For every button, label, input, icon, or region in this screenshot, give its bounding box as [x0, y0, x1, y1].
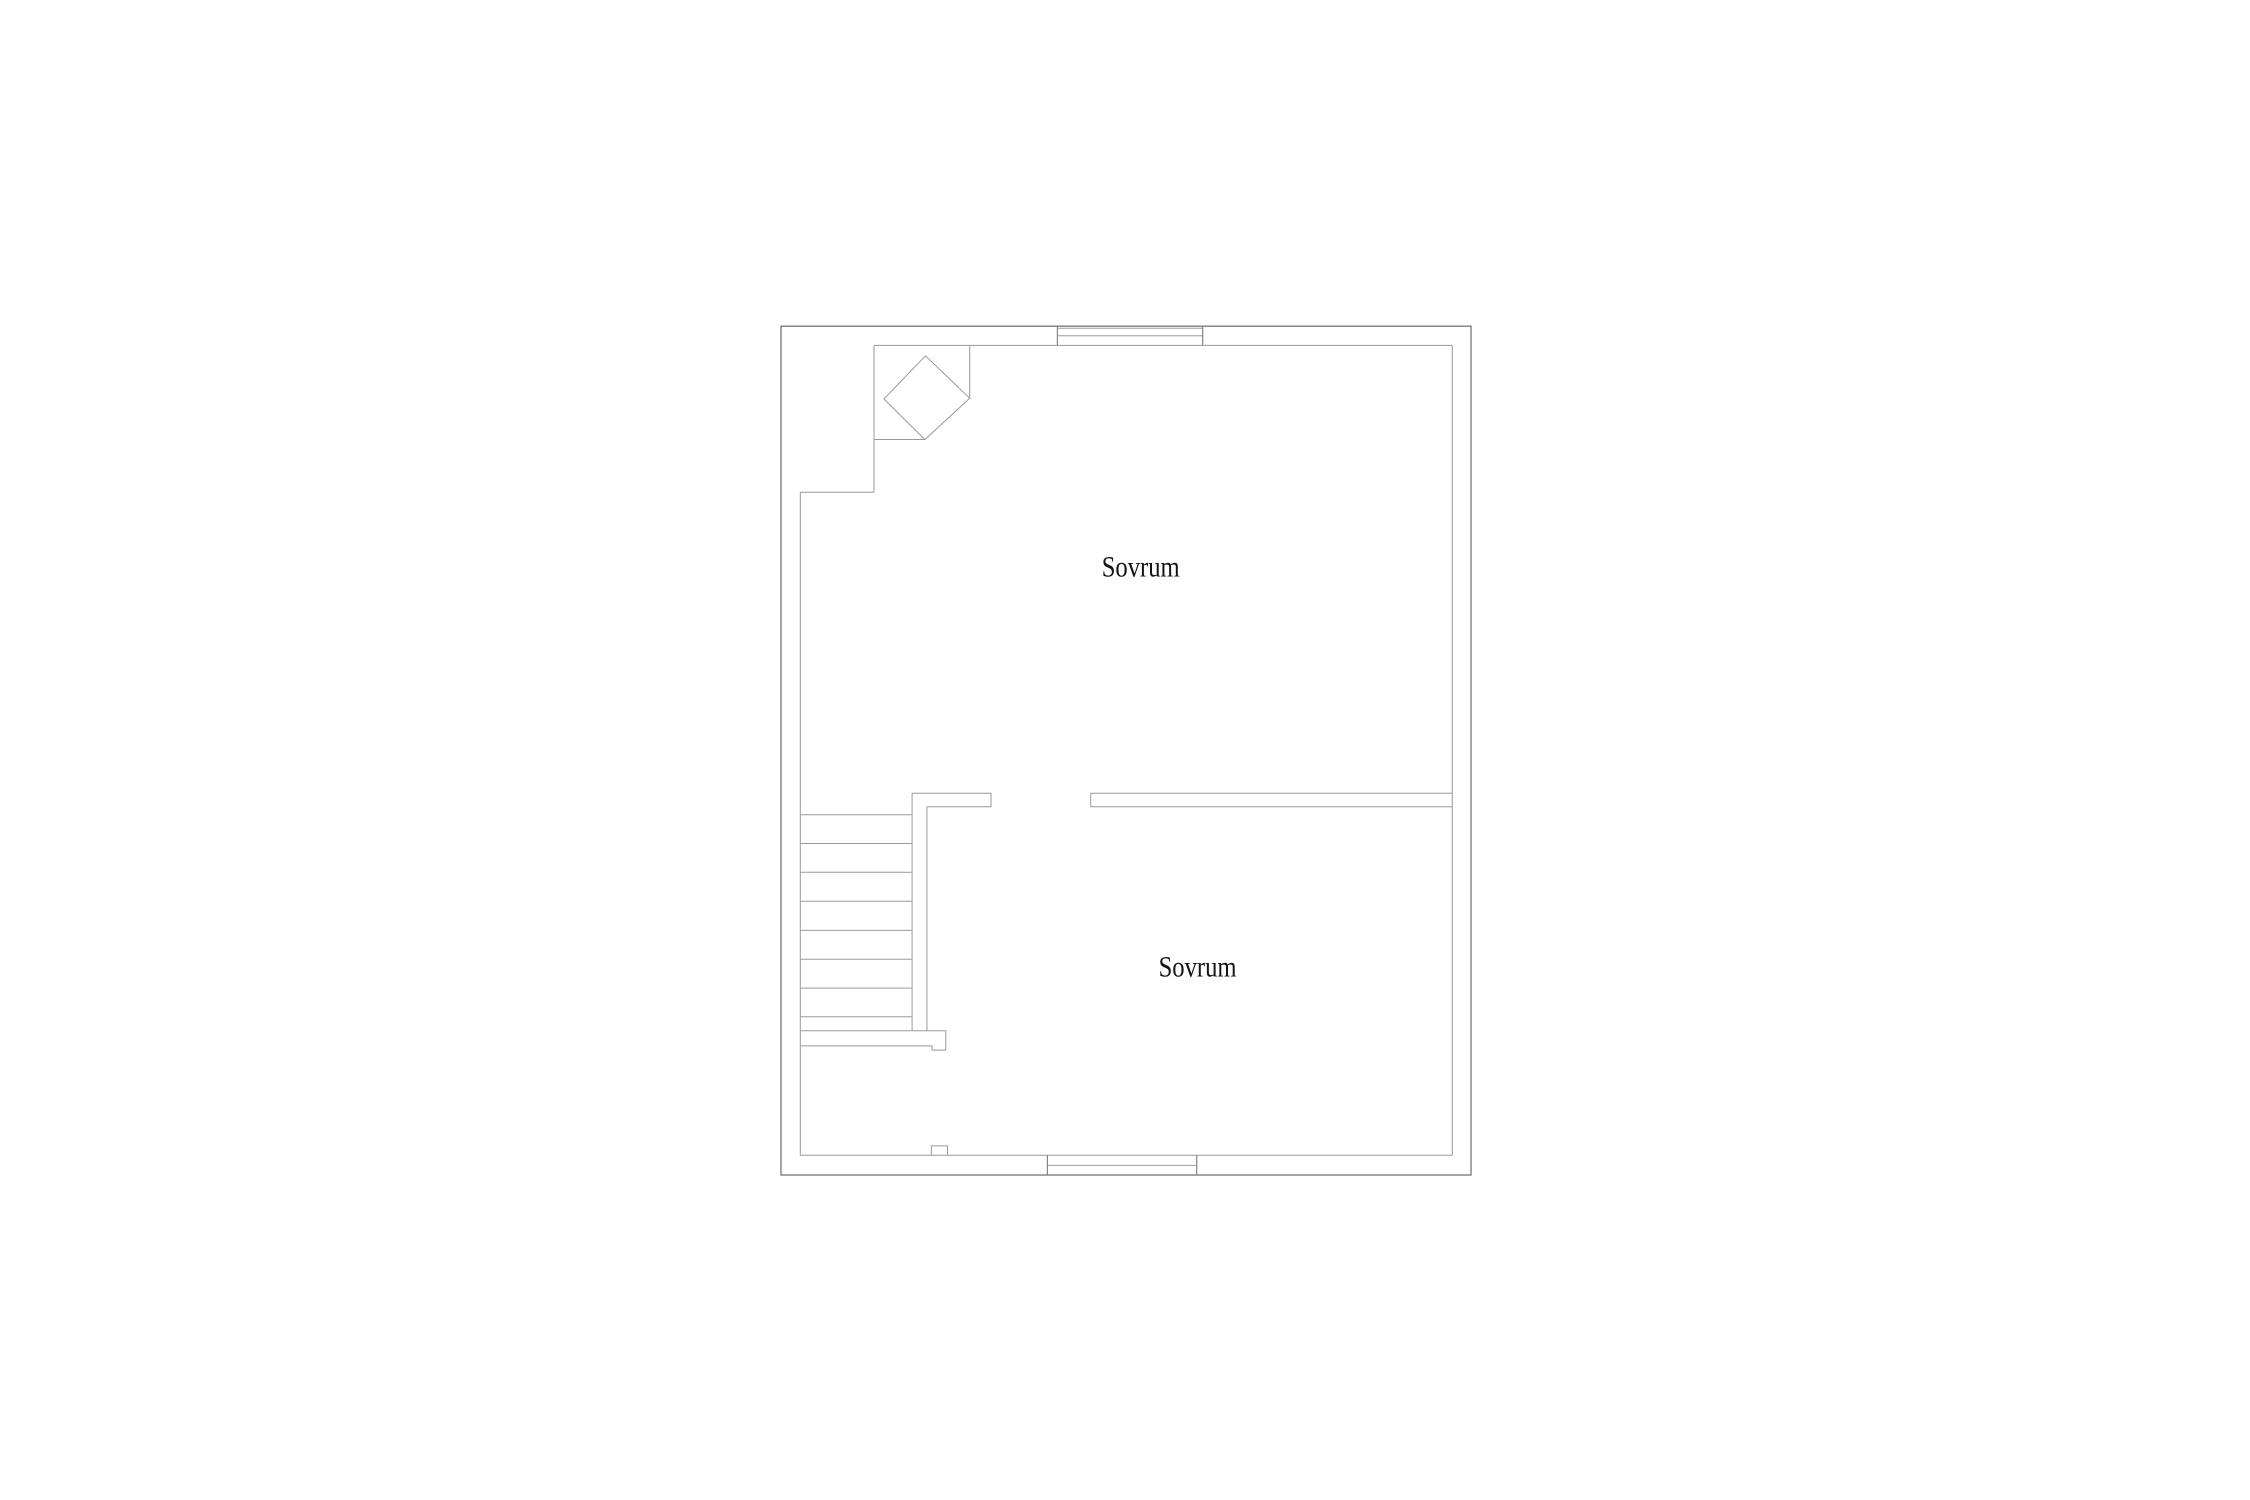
svg-text:Sovrum: Sovrum [1159, 952, 1237, 984]
svg-text:Sovrum: Sovrum [1102, 552, 1180, 584]
